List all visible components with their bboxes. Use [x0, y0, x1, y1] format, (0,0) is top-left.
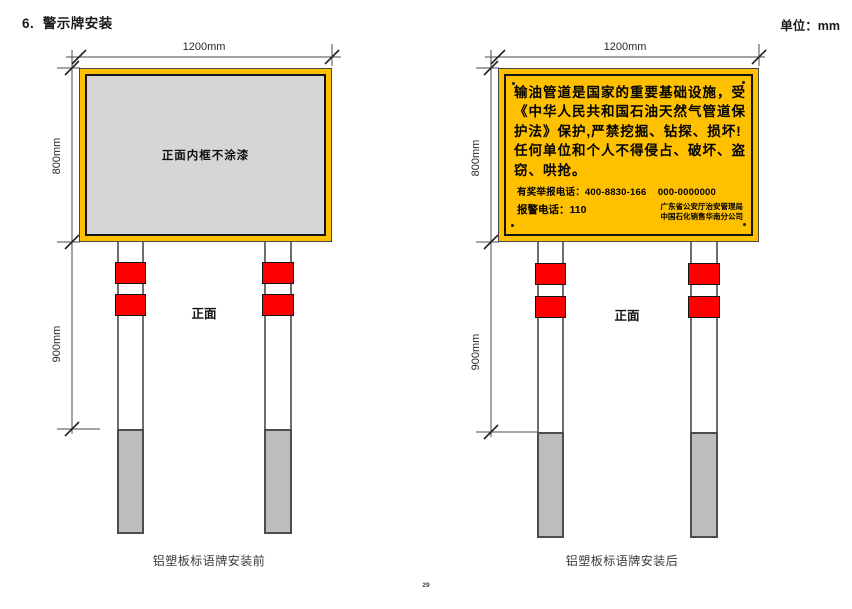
org-line-2: 中国石化销售华南分公司	[661, 212, 744, 222]
dim-height-after: 800mm	[470, 140, 482, 177]
red-band	[688, 296, 720, 318]
caption-before: 铝塑板标语牌安装前	[104, 552, 314, 569]
front-view-label-before: 正面	[160, 303, 248, 322]
red-band	[535, 263, 566, 285]
reward-hotline: 有奖举报电话：400-8830-166 000-0000000	[517, 184, 745, 198]
dim-post-before: 900mm	[51, 326, 63, 363]
page-number: 29	[406, 582, 446, 589]
sign-text-line: 任何单位和个人不得侵占、破坏、盗	[514, 141, 745, 160]
sign-panel-unpainted: 正面内框不涂漆	[85, 74, 326, 236]
panel-label: 正面内框不涂漆	[162, 147, 250, 163]
post-left-underground-before	[117, 429, 144, 534]
red-band	[262, 294, 294, 316]
red-band	[262, 262, 294, 284]
sign-board-after: 输油管道是国家的重要基础设施，受 《中华人民共和国石油天然气管道保 护法》保护,…	[498, 68, 759, 242]
caption-after: 铝塑板标语牌安装后	[517, 552, 727, 569]
red-band	[115, 294, 146, 316]
post-right-underground-after	[690, 432, 718, 538]
post-left-underground-after	[537, 432, 564, 538]
dim-post-after: 900mm	[470, 334, 482, 371]
org-line-1: 广东省公安厅治安管理局	[661, 202, 744, 212]
red-band	[115, 262, 146, 284]
dim-height-before: 800mm	[51, 138, 63, 175]
dim-width-before: 1200mm	[183, 41, 226, 53]
red-band	[688, 263, 720, 285]
sign-text-line: 窃、哄抢。	[514, 161, 745, 180]
red-band	[535, 296, 566, 318]
issuing-organizations: 广东省公安厅治安管理局 中国石化销售华南分公司	[661, 202, 744, 222]
dim-width-after: 1200mm	[604, 41, 647, 53]
sign-text-line: 输油管道是国家的重要基础设施，受	[514, 83, 745, 102]
post-right-underground-before	[264, 429, 292, 534]
sign-board-before: 正面内框不涂漆	[79, 68, 332, 242]
document-page: 6. 警示牌安装 单位：mm	[0, 0, 852, 609]
screw-dot	[743, 223, 746, 226]
screw-dot	[742, 81, 745, 84]
police-phone: 报警电话：110	[517, 202, 586, 217]
warning-sign-face: 输油管道是国家的重要基础设施，受 《中华人民共和国石油天然气管道保 护法》保护,…	[504, 74, 753, 236]
screw-dot	[512, 82, 515, 85]
screw-dot	[511, 224, 514, 227]
sign-text-line: 护法》保护,严禁挖掘、钻探、损坏!	[514, 122, 745, 141]
sign-bottom-row: 报警电话：110 广东省公安厅治安管理局 中国石化销售华南分公司	[517, 202, 743, 222]
sign-text-line: 《中华人民共和国石油天然气管道保	[514, 102, 745, 121]
front-view-label-after: 正面	[583, 305, 671, 324]
